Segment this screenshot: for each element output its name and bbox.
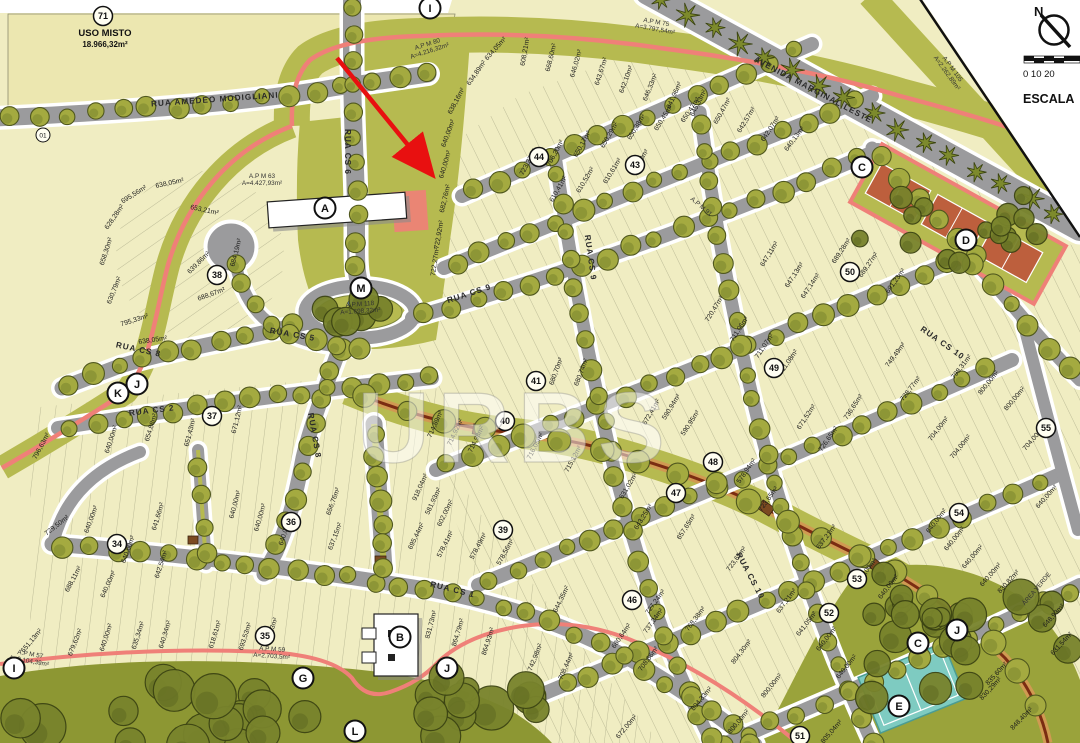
street-tree-shade <box>1005 491 1016 502</box>
street-tree-shade <box>281 93 293 105</box>
block-number: 48 <box>708 457 718 467</box>
street-tree-shade <box>519 609 529 619</box>
street-tree-shade <box>704 708 715 719</box>
street-tree-shade <box>710 233 720 243</box>
park-tree-shade <box>859 694 875 710</box>
street-tree-shade <box>568 633 577 642</box>
street-tree-shade <box>1019 322 1030 333</box>
street-tree-shade <box>880 408 891 419</box>
park-tree-shade <box>112 708 127 723</box>
street-tree-shade <box>296 469 306 479</box>
street-tree-shade <box>581 537 592 548</box>
park-tree-shade <box>959 683 973 697</box>
street-tree-shade <box>615 504 626 515</box>
park-tree-shade <box>902 241 912 251</box>
letter-marker: J <box>444 663 450 675</box>
street-tree-shade <box>347 32 357 42</box>
street-tree-shade <box>690 712 701 723</box>
street-tree-shade <box>564 257 574 267</box>
street-tree-shade <box>776 127 785 136</box>
park-tree-shade <box>905 214 914 223</box>
street-tree-shade <box>491 179 503 191</box>
park-tree-shade <box>865 612 876 623</box>
street-tree-shade <box>729 608 741 620</box>
uso-misto-line2: 18.966,32m² <box>82 40 128 49</box>
street-tree-shade <box>642 586 652 596</box>
street-tree-shade <box>978 365 988 375</box>
street-tree-shade <box>500 238 509 247</box>
street-tree-shade <box>350 188 361 199</box>
street-tree-shade <box>882 545 891 554</box>
letter-marker: I <box>428 3 431 15</box>
letter-marker: L <box>352 726 359 738</box>
park-tree-shade <box>894 612 908 626</box>
street-tree-shade <box>537 557 546 566</box>
street-tree-shade <box>496 288 506 298</box>
street-tree-shade <box>911 655 923 667</box>
block-number: 49 <box>769 363 779 373</box>
street-tree-shade <box>789 713 798 722</box>
street-tree-shade <box>806 443 815 452</box>
scale-ticks: 0 10 20 <box>1023 69 1055 80</box>
block-number: 55 <box>1041 423 1051 433</box>
street-tree-shade <box>249 302 258 311</box>
street-tree-shade <box>1063 591 1072 600</box>
street-tree-shade <box>779 518 792 531</box>
street-tree-shade <box>1006 302 1014 310</box>
street-tree-shade <box>118 417 127 426</box>
block-number: 46 <box>627 595 637 605</box>
street-tree-shade <box>799 179 809 189</box>
street-tree-shade <box>671 663 680 672</box>
compass-n-label: N <box>1034 4 1043 19</box>
street-tree-shade <box>550 172 559 181</box>
street-tree-shade <box>869 292 880 303</box>
street-tree-shade <box>658 682 667 691</box>
urbs-watermark: URBS <box>357 372 672 484</box>
park-tree-shade <box>511 686 529 704</box>
street-tree-shade <box>54 544 66 556</box>
street-tree-shade <box>981 500 990 509</box>
letter-marker: D <box>962 235 970 247</box>
street-tree-shade <box>351 212 361 222</box>
street-tree-shade <box>549 221 558 230</box>
street-tree-shade <box>815 311 827 323</box>
street-tree-shade <box>575 207 587 219</box>
street-tree-shade <box>723 208 731 216</box>
street-tree-shade <box>904 536 916 548</box>
park-tree-shade <box>213 720 230 737</box>
park-tree-shade <box>1016 194 1025 203</box>
street-tree-shade <box>346 82 355 91</box>
street-tree-shade <box>114 364 122 372</box>
apm-label: A.P M 59A=2.703,5m² <box>253 645 291 662</box>
street-tree-shade <box>512 568 521 577</box>
street-tree-shade <box>346 58 356 68</box>
park-tree-shade <box>951 261 962 272</box>
block-number: 39 <box>498 525 508 535</box>
street-tree-shade <box>216 560 225 569</box>
park-tree-shade <box>892 195 903 206</box>
park-tree-shade <box>940 257 950 267</box>
street-tree-shade <box>761 452 771 462</box>
street-tree-shade <box>733 343 745 355</box>
street-tree-shade <box>61 383 72 394</box>
street-tree-shade <box>416 310 427 321</box>
street-tree-shade <box>375 540 385 550</box>
park-tree-shade <box>157 686 178 707</box>
street-tree-shade <box>704 159 713 168</box>
street-tree-shade <box>630 558 641 569</box>
street-tree-shade <box>1008 667 1021 680</box>
street-tree-shade <box>1062 365 1074 377</box>
letter-marker: K <box>114 388 122 400</box>
street-tree-shade <box>599 256 611 268</box>
block-number: 52 <box>824 608 834 618</box>
street-tree-shade <box>117 106 127 116</box>
street-tree-shade <box>822 110 833 121</box>
street-tree-shade <box>854 715 865 726</box>
street-tree-shade <box>138 103 149 114</box>
street-tree-shade <box>751 426 762 437</box>
block-number: 47 <box>671 488 681 498</box>
street-tree-shade <box>241 394 252 405</box>
subdivision-map-page: N 0 10 20 ESCALA <box>0 0 1080 743</box>
street-tree-shade <box>623 242 634 253</box>
street-tree-shade <box>593 640 603 650</box>
street-tree-shade <box>261 566 272 577</box>
street-tree-shade <box>702 178 712 188</box>
street-tree-shade <box>674 170 682 178</box>
street-tree-shade <box>990 622 999 631</box>
park-tree-shade <box>334 319 348 333</box>
top-margin <box>0 0 452 13</box>
street-tree-shade <box>541 617 552 628</box>
street-tree-shade <box>723 148 733 158</box>
street-tree-shade <box>347 263 358 274</box>
street-tree-shade <box>450 262 460 272</box>
street-tree-shade <box>498 606 507 615</box>
block-number: 35 <box>260 631 270 641</box>
street-tree-shade <box>365 79 374 88</box>
street-tree-shade <box>334 83 343 92</box>
street-tree-shade <box>548 274 558 284</box>
street-tree-shade <box>742 373 750 381</box>
park-tree-shade <box>853 237 861 245</box>
letter-marker: B <box>396 632 404 644</box>
letter-marker: J <box>954 625 960 637</box>
street-tree-shade <box>214 338 225 349</box>
street-tree-shade <box>91 421 101 431</box>
street-tree-shade <box>933 390 942 399</box>
scale-label: ESCALA <box>1023 92 1074 106</box>
street-tree-shade <box>824 165 834 175</box>
street-tree-shade <box>782 454 791 463</box>
street-tree-shade <box>351 345 363 357</box>
street-tree-shade <box>194 492 204 502</box>
street-tree-shade <box>647 237 655 245</box>
street-tree-shade <box>317 573 328 584</box>
street-tree-shade <box>310 90 321 101</box>
park-tree-shade <box>979 228 987 236</box>
street-tree-shade <box>238 562 248 572</box>
street-tree-shade <box>854 422 864 432</box>
street-tree-shade <box>890 667 900 677</box>
street-tree-shade <box>2 113 12 123</box>
street-tree-shade <box>932 217 942 227</box>
street-tree-shade <box>522 283 533 294</box>
street-tree-shade <box>234 280 244 290</box>
park-tree-shade <box>923 685 939 701</box>
street-tree-shade <box>171 106 182 117</box>
street-tree-shade <box>560 229 568 237</box>
street-tree-shade <box>417 587 427 597</box>
street-tree-shade <box>784 533 795 544</box>
street-tree-shade <box>238 333 247 342</box>
block-number: 43 <box>630 160 640 170</box>
street-tree-shade <box>763 718 773 728</box>
street-tree-shade <box>190 465 200 475</box>
uso-misto-label: USO MISTO 18.966,32m² <box>78 28 131 49</box>
street-tree-shade <box>199 550 210 561</box>
park-tree-shade <box>196 692 219 715</box>
street-tree-shade <box>375 565 385 575</box>
park-tree-shade <box>417 710 434 727</box>
park-tree-shade <box>924 616 934 626</box>
street-tree-shade <box>790 320 801 331</box>
street-tree-shade <box>420 70 430 80</box>
block-number: 54 <box>954 508 964 518</box>
park-tree-shade <box>954 648 968 662</box>
map-canvas: N 0 10 20 ESCALA <box>0 0 1080 743</box>
street-tree-shade <box>1034 481 1042 489</box>
street-tree-shade <box>473 297 482 306</box>
street-tree-shade <box>818 702 828 712</box>
street-tree-shade <box>572 310 582 320</box>
street-tree-shade <box>566 285 576 295</box>
block-number: 50 <box>845 267 855 277</box>
letter-marker: C <box>858 162 866 174</box>
street-tree-shade <box>189 402 200 413</box>
street-tree-shade <box>578 337 588 347</box>
street-tree-shade <box>698 149 706 157</box>
block-number: 51 <box>795 731 805 741</box>
block-number: 36 <box>286 517 296 527</box>
street-tree-shade <box>444 306 454 316</box>
street-tree-shade <box>839 302 851 314</box>
street-tree-shade <box>376 522 386 532</box>
street-tree-shade <box>832 569 843 580</box>
street-tree-shade <box>85 370 97 382</box>
street-tree-shade <box>392 74 404 86</box>
park-tree-shade <box>5 714 25 734</box>
street-tree-shade <box>82 543 92 553</box>
street-tree-shade <box>713 355 725 367</box>
street-tree-shade <box>482 578 491 587</box>
street-tree-shade <box>676 224 688 236</box>
street-tree-shade <box>984 281 996 293</box>
street-tree-shade <box>1041 346 1053 358</box>
street-tree-shade <box>738 71 749 82</box>
street-tree-shade <box>369 581 379 591</box>
street-tree-shade <box>290 567 301 578</box>
street-tree-shade <box>183 347 194 358</box>
street-tree-shade <box>470 249 481 260</box>
letter-marker: E <box>895 701 902 713</box>
street-tree-shade <box>775 189 787 201</box>
park-tree-shade <box>874 572 886 584</box>
street-tree-shade <box>683 632 694 643</box>
letter-marker: I <box>12 663 15 675</box>
street-tree-shade <box>271 391 281 401</box>
street-tree-shade <box>694 362 703 371</box>
street-tree-shade <box>288 497 300 509</box>
street-tree-shade <box>347 240 358 251</box>
street-tree-shade <box>89 109 98 118</box>
street-tree-shade <box>984 639 998 653</box>
block-number: 44 <box>534 152 544 162</box>
block-number: 34 <box>112 539 122 549</box>
letter-marker: J <box>134 379 140 391</box>
street-tree-shade <box>842 688 852 698</box>
street-tree-shade <box>132 549 143 560</box>
street-tree-shade <box>268 542 279 553</box>
street-tree-shade <box>604 661 615 672</box>
uso-misto-line1: USO MISTO <box>78 28 131 39</box>
street-tree-shade <box>322 368 332 378</box>
street-tree-shade <box>341 572 350 581</box>
street-tree-shade <box>217 398 228 409</box>
street-tree-shade <box>606 527 617 538</box>
letter-marker: C <box>914 638 922 650</box>
street-tree-shade <box>346 109 356 119</box>
street-tree-shade <box>301 443 311 453</box>
street-tree-shade <box>561 680 571 690</box>
street-tree-shade <box>330 343 340 353</box>
street-tree-shade <box>800 588 809 597</box>
letter-marker: A <box>321 203 329 215</box>
small-number: 01 <box>39 132 47 139</box>
street-tree-shade <box>556 201 567 212</box>
park-tree-shade <box>448 697 465 714</box>
street-tree-shade <box>749 142 760 153</box>
block-number: 71 <box>98 11 108 21</box>
block-number: 53 <box>852 574 862 584</box>
park-tree-shade <box>292 713 308 729</box>
street-tree-shade <box>135 355 145 365</box>
street-tree-shade <box>391 585 401 595</box>
street-tree-shade <box>465 186 476 197</box>
park-tree-shade <box>867 661 880 674</box>
street-tree-shade <box>648 177 656 185</box>
street-tree-shade <box>721 287 732 298</box>
park-tree-shade <box>993 224 1003 234</box>
street-tree-shade <box>712 82 722 92</box>
street-tree-shade <box>314 396 324 406</box>
street-tree-shade <box>694 122 704 132</box>
street-tree-shade <box>794 560 803 569</box>
street-tree-shade <box>851 553 863 565</box>
block-number: 37 <box>207 411 217 421</box>
street-tree-shade <box>618 653 627 662</box>
street-tree-shade <box>874 153 885 164</box>
street-tree-shade <box>561 545 569 553</box>
street-tree-shade <box>321 385 330 394</box>
park-tree-shade <box>883 633 899 649</box>
park-tree-shade <box>1028 232 1038 242</box>
street-tree-shade <box>61 115 70 124</box>
street-tree-shade <box>372 498 384 510</box>
street-tree-shade <box>625 189 636 200</box>
small-number-markers: 01 <box>36 128 50 142</box>
street-tree-shade <box>749 196 759 206</box>
street-tree-shade <box>708 619 719 630</box>
street-tree-shade <box>745 396 754 405</box>
street-tree-shade <box>346 5 355 14</box>
street-tree-shade <box>598 199 607 208</box>
street-tree-shade <box>739 498 753 512</box>
street-tree-shade <box>774 504 783 513</box>
street-tree-shade <box>32 114 42 124</box>
street-tree-shade <box>63 426 72 435</box>
street-tree-shade <box>715 261 726 272</box>
park-tree-shade <box>1016 216 1026 226</box>
street-tree-shade <box>522 230 532 240</box>
street-tree-shade <box>657 503 668 514</box>
street-tree-shade <box>198 525 207 534</box>
street-name-label: RUA CS 6 <box>343 129 352 175</box>
street-tree-shade <box>580 674 591 685</box>
street-tree-shade <box>708 480 720 492</box>
letter-marker: M <box>356 283 365 295</box>
street-tree-shade <box>761 598 770 607</box>
street-tree-shade <box>788 47 796 55</box>
block-number: 38 <box>212 270 222 280</box>
street-tree-shade <box>295 393 304 402</box>
street-tree-shade <box>917 272 927 282</box>
street-tree-shade <box>657 633 667 643</box>
letter-marker: G <box>299 673 308 685</box>
